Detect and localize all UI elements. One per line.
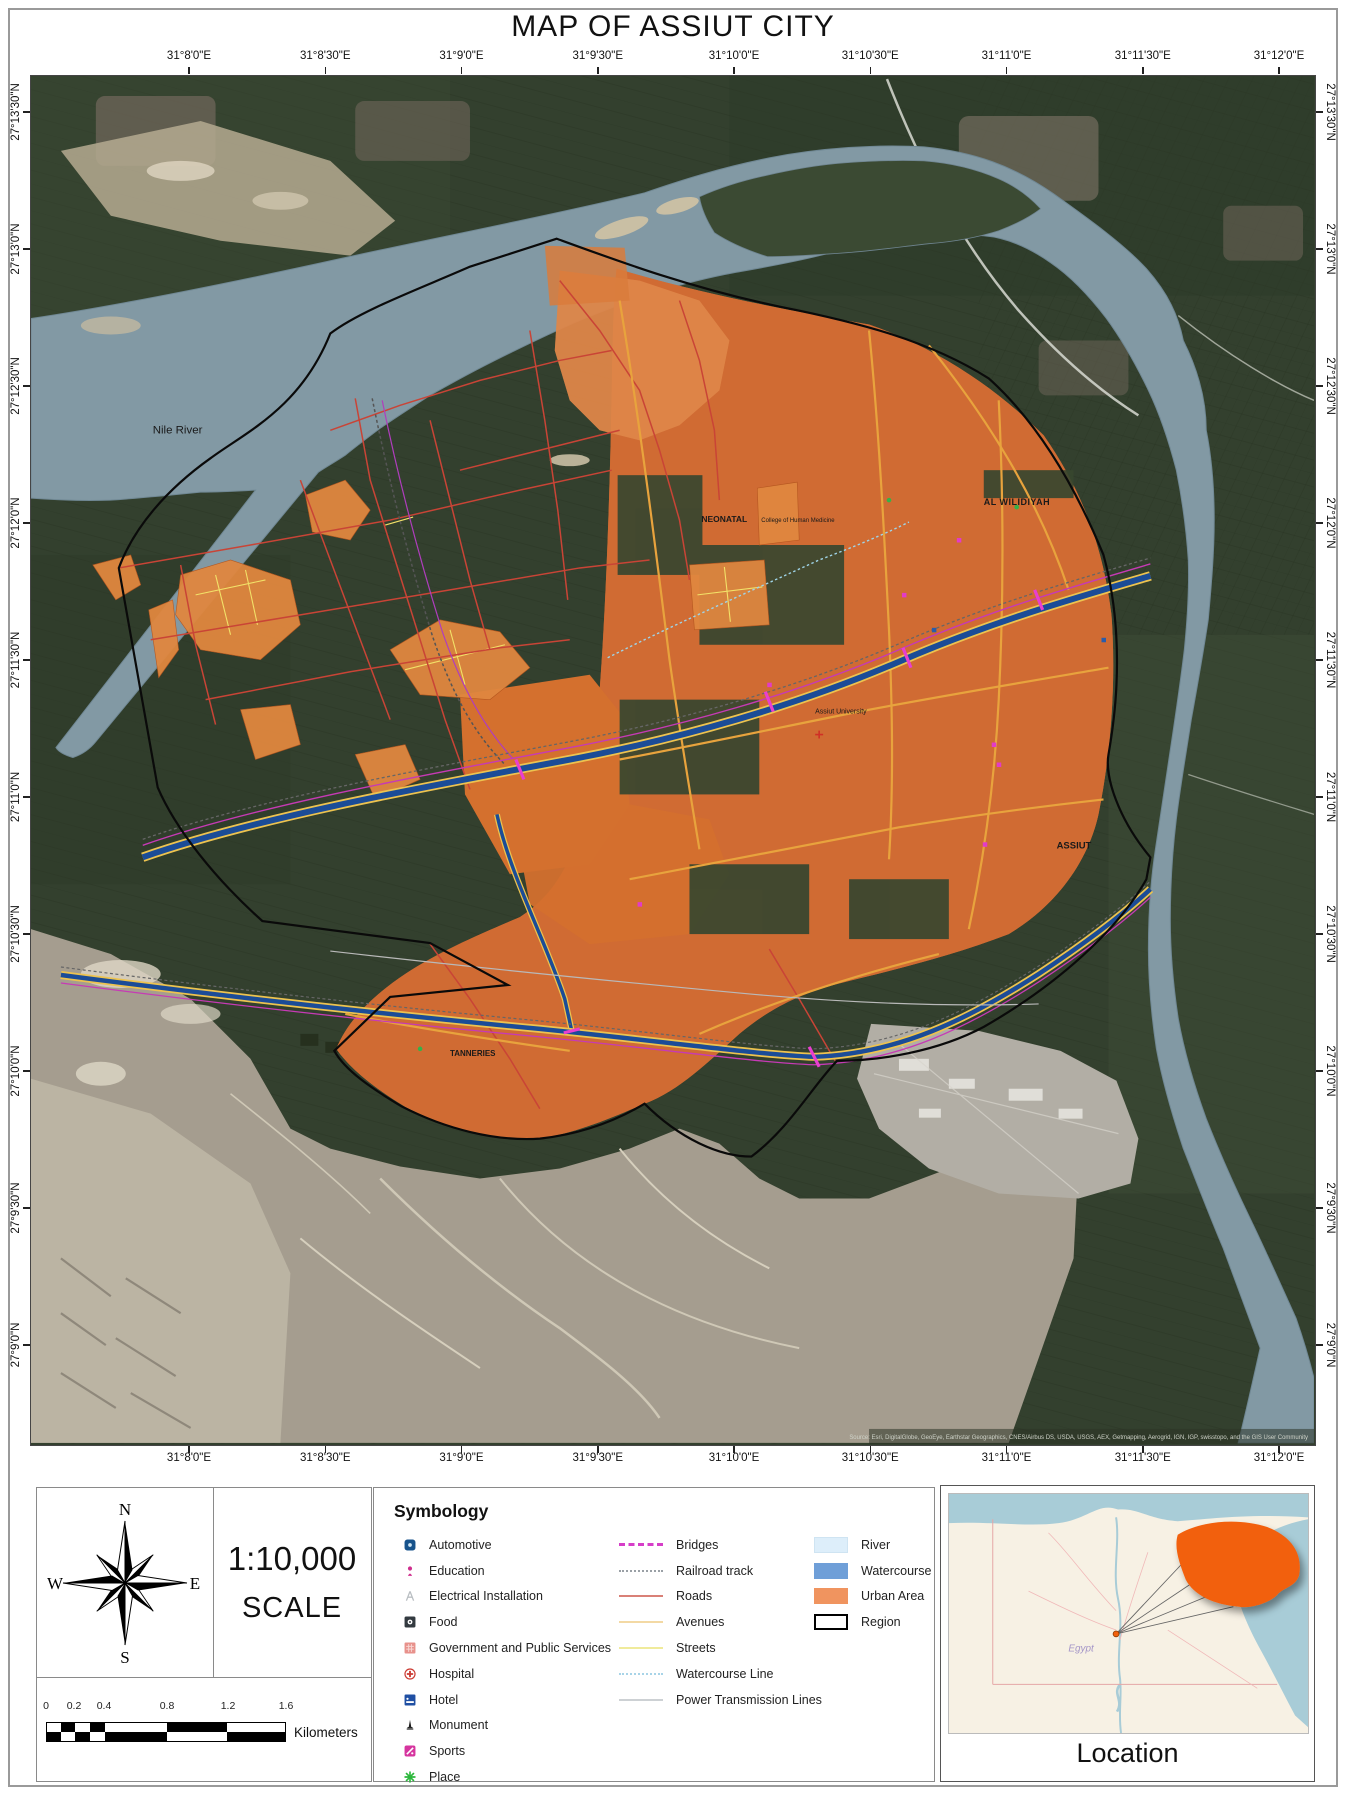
coordinate-label: 27°11'0"N: [10, 772, 22, 822]
power-lines-line-swatch: [619, 1699, 663, 1701]
coordinate-label: 31°9'0"E: [439, 1452, 483, 1464]
legend-item-label: Region: [861, 1615, 901, 1629]
legend-item: Railroad track: [619, 1558, 814, 1584]
legend-item: Automotive: [404, 1532, 619, 1558]
compass-east-label: E: [190, 1574, 200, 1593]
avenues-line-swatch: [619, 1621, 663, 1623]
coordinate-label: 27°13'30"N: [10, 83, 22, 141]
poi-label: Assiut University: [815, 709, 867, 716]
legend-item: Monument: [404, 1713, 619, 1739]
tick-mark: [461, 1446, 463, 1453]
tick-mark: [23, 659, 30, 661]
coordinate-label: 27°11'30"N: [10, 632, 22, 689]
coordinate-label: 27°13'0"N: [1324, 223, 1336, 274]
legend-item-label: Food: [429, 1615, 458, 1629]
legend-item-label: Electrical Installation: [429, 1589, 543, 1603]
legend-item-label: Avenues: [676, 1615, 724, 1629]
tick-mark: [325, 1446, 327, 1453]
scalebar-segment: [61, 1732, 75, 1741]
railroad-line-swatch: [619, 1570, 663, 1572]
scalebar-segment: [61, 1723, 75, 1732]
coordinate-label: 27°9'30"N: [10, 1182, 22, 1233]
education-icon: [404, 1565, 416, 1577]
tick-mark: [1142, 67, 1144, 74]
coordinate-label: 31°8'30"E: [300, 50, 351, 62]
legend-item: Education: [404, 1558, 619, 1584]
tick-mark: [1316, 522, 1323, 524]
tick-mark: [23, 111, 30, 113]
legend-item: Power Transmission Lines: [619, 1687, 814, 1713]
legend-area-items: RiverWatercourseUrban AreaRegion: [814, 1532, 934, 1790]
legend-point-items: AutomotiveEducationElectrical Installati…: [374, 1532, 619, 1790]
tick-mark: [1316, 248, 1323, 250]
hospital-icon: [404, 1668, 416, 1680]
legend-item-label: Monument: [429, 1718, 488, 1732]
scalebar-tick-label: 1.2: [221, 1700, 236, 1712]
legend-item-label: Hotel: [429, 1693, 458, 1707]
legend-item: Roads: [619, 1584, 814, 1610]
coordinate-label: 31°10'30"E: [842, 50, 899, 62]
tick-mark: [188, 67, 190, 74]
tick-mark: [870, 1446, 872, 1453]
tick-mark: [23, 385, 30, 387]
attribution-text: Source: Esri, DigitalGlobe, GeoEye, Eart…: [849, 1435, 1308, 1441]
tick-mark: [23, 933, 30, 935]
legend-item: Bridges: [619, 1532, 814, 1558]
coordinate-label: 31°10'0"E: [709, 50, 760, 62]
region-area-swatch: [814, 1614, 848, 1630]
legend-item: Avenues: [619, 1609, 814, 1635]
scalebar-segment: [105, 1732, 167, 1741]
place-icon: [404, 1771, 416, 1783]
coordinate-label: 31°9'30"E: [572, 50, 623, 62]
coordinate-label: 27°10'0"N: [1324, 1045, 1336, 1096]
urban-north-tip: [545, 246, 630, 306]
sports-icon: [404, 1745, 416, 1757]
streets-line-swatch: [619, 1647, 663, 1649]
tick-mark: [1316, 111, 1323, 113]
scalebar: [46, 1722, 286, 1742]
symbology-box: Symbology AutomotiveEducationElectrical …: [373, 1487, 935, 1782]
coordinate-label: 27°12'30"N: [10, 357, 22, 415]
legend-item: Government and Public Services: [404, 1635, 619, 1661]
compass-south-label: S: [120, 1648, 129, 1667]
legend-item: Food: [404, 1609, 619, 1635]
scale-box: 1:10,000 SCALE: [213, 1487, 372, 1678]
tick-mark: [1316, 1344, 1323, 1346]
tick-mark: [23, 1207, 30, 1209]
compass-west-label: W: [47, 1574, 64, 1593]
map-frame: Nile River AL WILIDIYAH NEONATAL College…: [30, 75, 1316, 1446]
legend-item: Sports: [404, 1738, 619, 1764]
legend-item-label: Roads: [676, 1589, 712, 1603]
compass-box: N E S W: [36, 1487, 214, 1678]
river-area-swatch: [814, 1537, 848, 1553]
tick-mark: [1278, 67, 1280, 74]
food-icon: [404, 1616, 416, 1628]
legend-item-label: Watercourse: [861, 1564, 931, 1578]
legend-item: Hospital: [404, 1661, 619, 1687]
location-inset-map: Egypt: [948, 1493, 1309, 1734]
legend-item-label: Streets: [676, 1641, 716, 1655]
poi-label: College of Human Medicine: [761, 518, 835, 524]
coordinate-label: 31°11'30"E: [1115, 50, 1171, 62]
legend-item: Urban Area: [814, 1584, 934, 1610]
coordinate-label: 31°10'0"E: [709, 1452, 760, 1464]
tick-mark: [461, 67, 463, 74]
tick-mark: [188, 1446, 190, 1453]
location-label: Location: [941, 1738, 1314, 1769]
district-label: TANNERIES: [450, 1049, 495, 1058]
nile-river-label: Nile River: [153, 424, 203, 436]
tick-mark: [23, 1344, 30, 1346]
legend-item-label: Watercourse Line: [676, 1667, 774, 1681]
scalebar-segment: [75, 1732, 90, 1741]
legend-item: Watercourse Line: [619, 1661, 814, 1687]
legend-item-label: Railroad track: [676, 1564, 753, 1578]
legend-item-label: Place: [429, 1770, 460, 1784]
tick-mark: [1006, 1446, 1008, 1453]
legend-item-label: River: [861, 1538, 890, 1552]
hotel-icon: [404, 1694, 416, 1706]
country-label: Egypt: [1068, 1643, 1095, 1654]
compass-rose-icon: N E S W: [41, 1495, 209, 1671]
tick-mark: [1316, 933, 1323, 935]
coordinate-label: 27°12'0"N: [1324, 497, 1336, 548]
scalebar-tick-label: 0.4: [97, 1700, 112, 1712]
assiut-location-marker: [1113, 1631, 1119, 1637]
coordinate-label: 27°13'0"N: [10, 223, 22, 274]
scalebar-tick-label: 1.6: [279, 1700, 294, 1712]
scalebar-segment: [227, 1723, 285, 1732]
scalebar-unit-label: Kilometers: [294, 1725, 358, 1740]
legend-line-items: BridgesRailroad trackRoadsAvenuesStreets…: [619, 1532, 814, 1790]
legend-item: Place: [404, 1764, 619, 1790]
scalebar-segment: [167, 1732, 227, 1741]
tick-mark: [870, 67, 872, 74]
coordinate-label: 27°11'30"N: [1324, 632, 1336, 689]
legend-item: Watercourse: [814, 1558, 934, 1584]
automotive-icon: [404, 1539, 416, 1551]
coordinate-label: 27°9'0"N: [1324, 1323, 1336, 1368]
coordinate-label: 31°9'0"E: [439, 50, 483, 62]
legend-item: Electrical Installation: [404, 1584, 619, 1610]
coordinate-label: 27°12'30"N: [1324, 357, 1336, 415]
roads-line-swatch: [619, 1595, 663, 1597]
tick-mark: [23, 248, 30, 250]
scalebar-tick-label: 0.8: [160, 1700, 175, 1712]
tick-mark: [1142, 1446, 1144, 1453]
urban-area-area-swatch: [814, 1588, 848, 1604]
scalebar-segment: [90, 1732, 105, 1741]
coordinate-label: 27°13'30"N: [1324, 83, 1336, 141]
scalebar-tick-label: 0: [43, 1700, 49, 1712]
coordinate-label: 31°8'0"E: [167, 1452, 211, 1464]
legend-item-label: Sports: [429, 1744, 465, 1758]
tick-mark: [1316, 796, 1323, 798]
district-label: AL WILIDIYAH: [984, 497, 1050, 507]
scalebar-segment: [227, 1732, 285, 1741]
tick-mark: [733, 1446, 735, 1453]
coordinate-label: 27°11'0"N: [1324, 772, 1336, 822]
coordinate-label: 27°10'0"N: [10, 1045, 22, 1096]
coordinate-label: 31°11'30"E: [1115, 1452, 1171, 1464]
scalebar-tick-label: 0.2: [67, 1700, 82, 1712]
coordinate-label: 27°10'30"N: [10, 905, 22, 963]
tick-mark: [1316, 1070, 1323, 1072]
location-box: Egypt Location: [940, 1485, 1315, 1782]
bridges-line-swatch: [619, 1543, 663, 1546]
tick-mark: [23, 796, 30, 798]
scalebar-segment: [90, 1723, 105, 1732]
legend-item-label: Bridges: [676, 1538, 718, 1552]
tick-mark: [597, 67, 599, 74]
coordinate-label: 31°11'0"E: [982, 1452, 1032, 1464]
watercourse-area-swatch: [814, 1563, 848, 1579]
legend-item-label: Urban Area: [861, 1589, 924, 1603]
tick-mark: [597, 1446, 599, 1453]
coordinate-label: 27°12'0"N: [10, 497, 22, 548]
monument-icon: [404, 1719, 416, 1731]
map-canvas: Nile River AL WILIDIYAH NEONATAL College…: [31, 76, 1314, 1444]
tick-mark: [23, 522, 30, 524]
page-title: MAP OF ASSIUT CITY: [0, 10, 1346, 44]
legend-item: Streets: [619, 1635, 814, 1661]
tick-mark: [1316, 659, 1323, 661]
government-icon: [404, 1642, 416, 1654]
coordinate-label: 31°12'0"E: [1254, 50, 1305, 62]
legend-item: Region: [814, 1609, 934, 1635]
scale-ratio: 1:10,000: [228, 1540, 356, 1578]
scalebar-segment: [75, 1723, 90, 1732]
scalebar-box: Kilometers 00.20.40.81.21.6: [36, 1677, 372, 1783]
coordinate-label: 31°11'0"E: [982, 50, 1032, 62]
coordinate-label: 27°9'0"N: [10, 1323, 22, 1368]
legend-item-label: Hospital: [429, 1667, 474, 1681]
city-label: ASSIUT: [1057, 840, 1092, 851]
coordinate-label: 31°8'0"E: [167, 50, 211, 62]
legend-item-label: Automotive: [429, 1538, 492, 1552]
scalebar-segment: [105, 1723, 167, 1732]
tick-mark: [733, 67, 735, 74]
legend-item-label: Government and Public Services: [429, 1641, 611, 1655]
district-label: NEONATAL: [701, 514, 747, 524]
scale-word: SCALE: [242, 1592, 342, 1625]
legend-item-label: Power Transmission Lines: [676, 1693, 822, 1707]
tick-mark: [1316, 385, 1323, 387]
coordinate-label: 31°9'30"E: [572, 1452, 623, 1464]
tick-mark: [23, 1070, 30, 1072]
watercourse-line-line-swatch: [619, 1673, 663, 1675]
coordinate-label: 31°12'0"E: [1254, 1452, 1305, 1464]
legend-item: Hotel: [404, 1687, 619, 1713]
compass-north-label: N: [119, 1500, 131, 1519]
scalebar-segment: [47, 1732, 61, 1741]
coordinate-label: 27°10'30"N: [1324, 905, 1336, 963]
coordinate-label: 31°10'30"E: [842, 1452, 899, 1464]
scalebar-segment: [167, 1723, 227, 1732]
coordinate-label: 27°9'30"N: [1324, 1182, 1336, 1233]
symbology-heading: Symbology: [394, 1501, 934, 1522]
tick-mark: [325, 67, 327, 74]
legend-item: River: [814, 1532, 934, 1558]
tick-mark: [1278, 1446, 1280, 1453]
tick-mark: [1006, 67, 1008, 74]
tick-mark: [1316, 1207, 1323, 1209]
scalebar-segment: [47, 1723, 61, 1732]
coordinate-label: 31°8'30"E: [300, 1452, 351, 1464]
legend-item-label: Education: [429, 1564, 485, 1578]
electrical-installation-icon: [404, 1590, 416, 1602]
